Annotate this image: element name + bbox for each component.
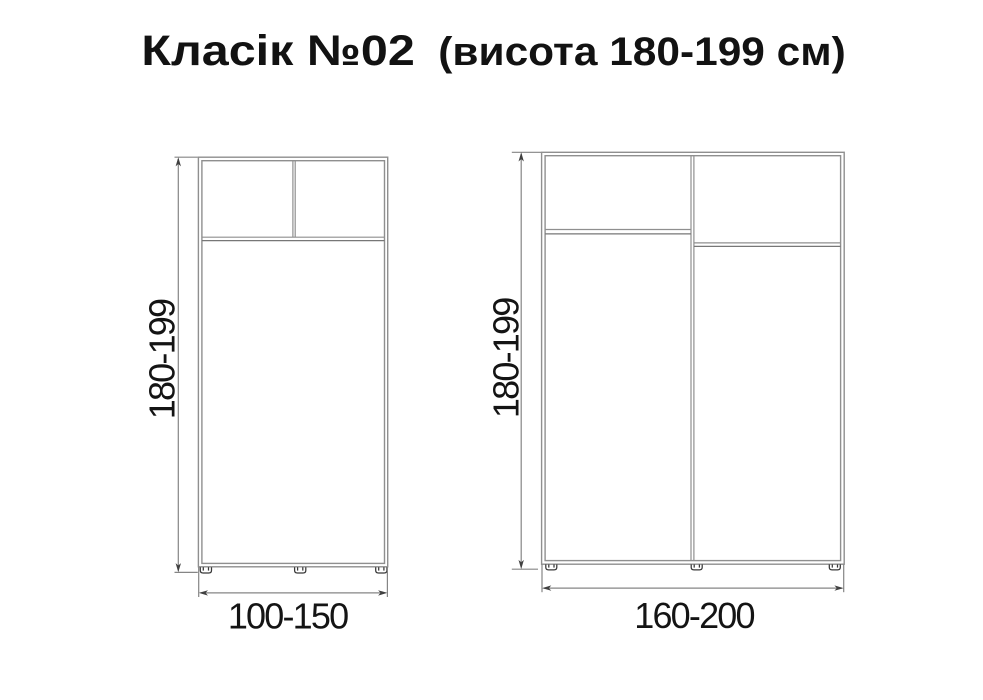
svg-text:180-199: 180-199 (142, 299, 183, 419)
svg-text:100-150: 100-150 (228, 596, 348, 637)
svg-text:(висота 180-199 см): (висота 180-199 см) (438, 30, 846, 74)
svg-text:Класік №02: Класік №02 (141, 27, 414, 75)
svg-text:160-200: 160-200 (634, 595, 754, 636)
svg-text:180-199: 180-199 (486, 298, 527, 418)
